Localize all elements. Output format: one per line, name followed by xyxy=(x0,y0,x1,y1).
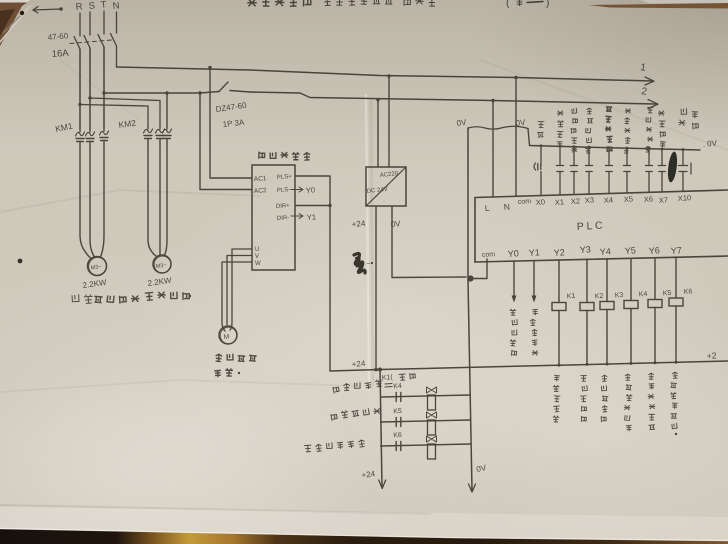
svg-text:+24: +24 xyxy=(351,359,366,369)
svg-text:0V: 0V xyxy=(456,118,468,128)
svg-text:K3: K3 xyxy=(615,292,624,300)
svg-text:K1(: K1( xyxy=(382,374,394,382)
svg-text:Y2: Y2 xyxy=(553,247,565,258)
svg-text:X1: X1 xyxy=(555,197,565,207)
svg-text:X4: X4 xyxy=(604,195,614,205)
svg-text:X7: X7 xyxy=(659,195,669,205)
svg-text:. 0V: . 0V xyxy=(702,138,718,149)
svg-text:Y5: Y5 xyxy=(624,245,636,256)
svg-text:Y6: Y6 xyxy=(648,245,660,256)
svg-text:K5: K5 xyxy=(393,408,402,416)
svg-text:DIR-: DIR- xyxy=(277,215,290,222)
svg-text:+2: +2 xyxy=(706,350,717,361)
svg-text:K6: K6 xyxy=(393,432,402,440)
svg-text:U: U xyxy=(255,247,259,253)
svg-text:K4: K4 xyxy=(639,291,648,299)
svg-text:com: com xyxy=(518,198,532,206)
svg-text:K5: K5 xyxy=(663,290,672,298)
svg-text:S: S xyxy=(88,0,95,12)
svg-text:K1: K1 xyxy=(567,293,576,301)
svg-text:W: W xyxy=(255,261,261,267)
svg-text:Y0: Y0 xyxy=(306,185,316,195)
svg-text:X3: X3 xyxy=(585,195,595,205)
svg-text:): ) xyxy=(546,0,549,9)
svg-text:Y1: Y1 xyxy=(307,212,317,222)
svg-text:PLS-: PLS- xyxy=(277,187,291,194)
svg-text:Y1: Y1 xyxy=(528,247,540,258)
svg-text:Y3: Y3 xyxy=(579,244,591,255)
svg-text:AC2: AC2 xyxy=(254,187,267,195)
svg-text:Y7: Y7 xyxy=(670,245,682,256)
svg-text:N: N xyxy=(503,202,510,212)
svg-text:+24: +24 xyxy=(351,219,366,229)
svg-text:X6: X6 xyxy=(644,194,654,204)
svg-text:M: M xyxy=(223,333,229,341)
svg-text:16A: 16A xyxy=(51,48,69,60)
svg-text:X2: X2 xyxy=(571,196,581,206)
svg-text:AC1: AC1 xyxy=(254,175,267,183)
svg-text:V: V xyxy=(255,254,259,260)
svg-text:R: R xyxy=(75,1,83,13)
svg-text:47-60: 47-60 xyxy=(47,31,69,42)
svg-text:X10: X10 xyxy=(678,193,692,203)
svg-text:X0: X0 xyxy=(536,197,546,207)
svg-text:Y4: Y4 xyxy=(599,246,611,257)
svg-text:P L C: P L C xyxy=(577,220,604,233)
svg-text:X5: X5 xyxy=(624,194,634,204)
svg-text:K2: K2 xyxy=(595,293,604,301)
svg-text:N: N xyxy=(112,0,120,12)
svg-text:PLS+: PLS+ xyxy=(277,174,293,181)
svg-text:com: com xyxy=(482,251,496,259)
svg-text:K6: K6 xyxy=(684,288,693,296)
svg-text:K4: K4 xyxy=(393,383,402,391)
svg-text:Y0: Y0 xyxy=(507,248,519,259)
svg-text:DIR+: DIR+ xyxy=(276,203,291,210)
